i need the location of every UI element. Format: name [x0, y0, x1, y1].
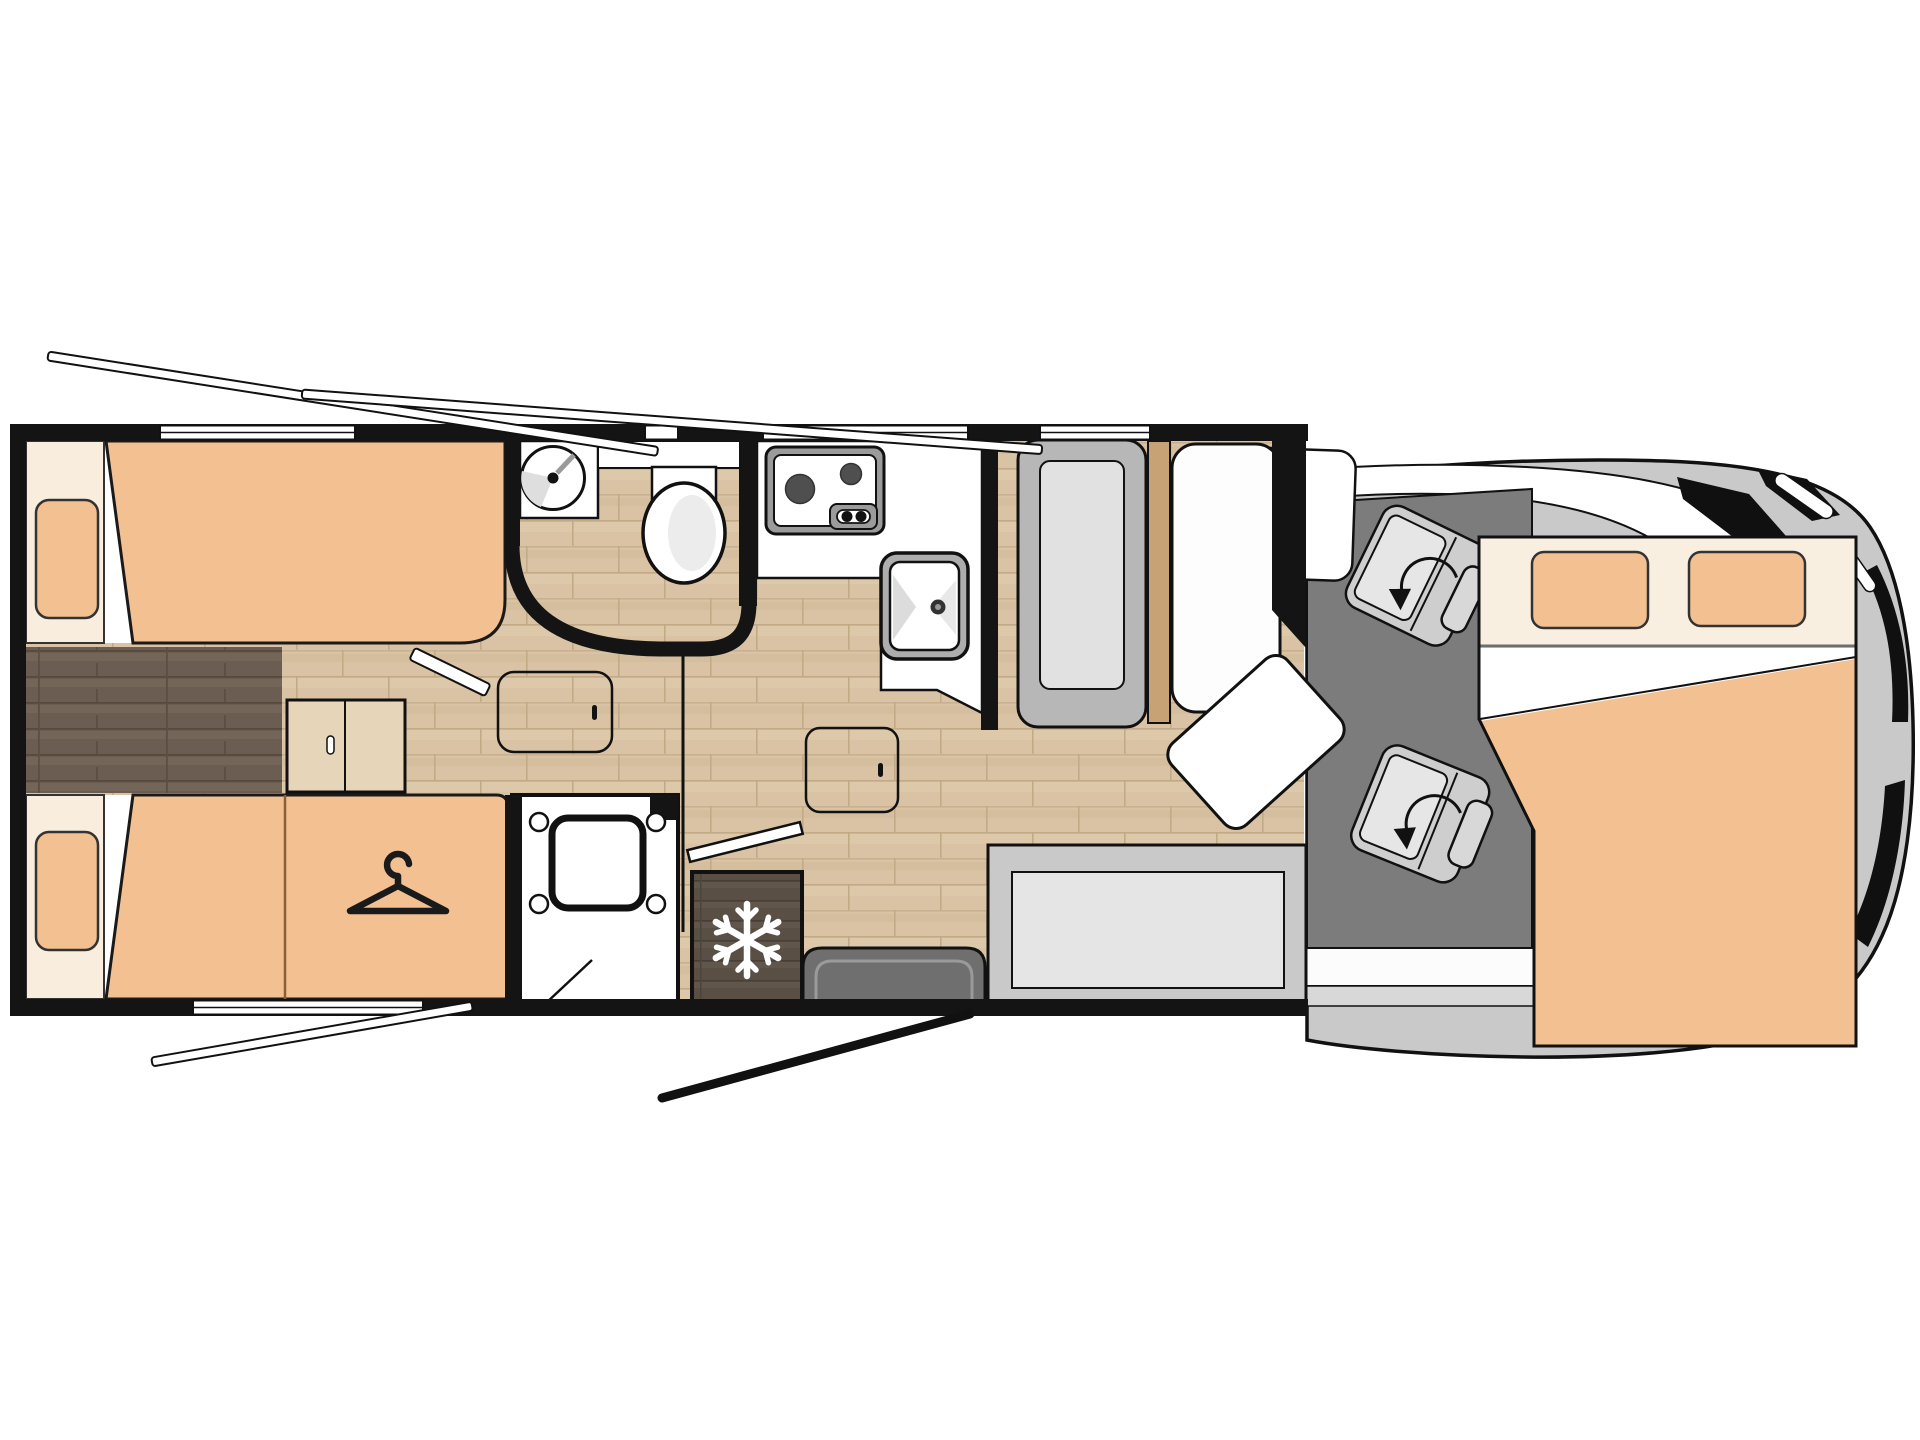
floor-hatch-2-handle	[878, 763, 883, 777]
floor-plan-canvas	[0, 0, 1920, 1440]
window-rear-top	[160, 426, 355, 440]
window-dinette	[1040, 426, 1150, 440]
overcab-pillow-right	[1689, 552, 1805, 626]
drop-down-bed	[1479, 537, 1856, 1046]
pillow-bottom-bed	[36, 832, 98, 950]
entry-door-swing	[662, 1014, 970, 1098]
shower-bolt-br	[647, 895, 665, 913]
overcab-pillow-left	[1532, 552, 1648, 628]
toilet-seat-shade	[668, 495, 716, 571]
floor-plan-svg	[0, 0, 1920, 1440]
shower-bolt-tr	[647, 813, 665, 831]
wall-right-top	[1272, 424, 1306, 610]
window-wardrobe-bottom	[193, 1001, 423, 1015]
stove-knob-1	[842, 511, 853, 522]
window-vent	[645, 426, 678, 440]
pillow-top-bed	[36, 500, 98, 618]
wall-bathroom-left	[505, 424, 520, 546]
twin-bed-top-mattress	[106, 441, 505, 643]
steps-handle	[327, 736, 334, 754]
bathroom-sink-drain	[548, 473, 559, 484]
burner-large	[786, 475, 815, 504]
twin-bed-bottom-mattress	[106, 795, 508, 999]
cab-step	[1305, 948, 1537, 986]
dinette-bench-left-cushion	[1040, 461, 1124, 689]
shower-bolt-tl	[530, 813, 548, 831]
bottom-bench-cushion	[1012, 872, 1284, 988]
wall-left	[10, 424, 26, 1016]
wall-bathroom-right	[739, 424, 757, 606]
stove-knob-2	[856, 511, 867, 522]
floor-hatch-1-handle	[592, 705, 597, 720]
drop-down-bed-mattress	[1481, 659, 1856, 1046]
wall-kitchen-dinette	[981, 424, 998, 730]
shower-left-wall	[505, 795, 522, 1008]
walkway-dark-floor	[26, 647, 282, 793]
shower-bolt-bl	[530, 895, 548, 913]
dinette-sideboard	[1148, 441, 1170, 723]
burner-small	[841, 464, 862, 485]
kitchen-faucet-dot	[935, 604, 941, 610]
cab-sill	[1305, 986, 1537, 1006]
